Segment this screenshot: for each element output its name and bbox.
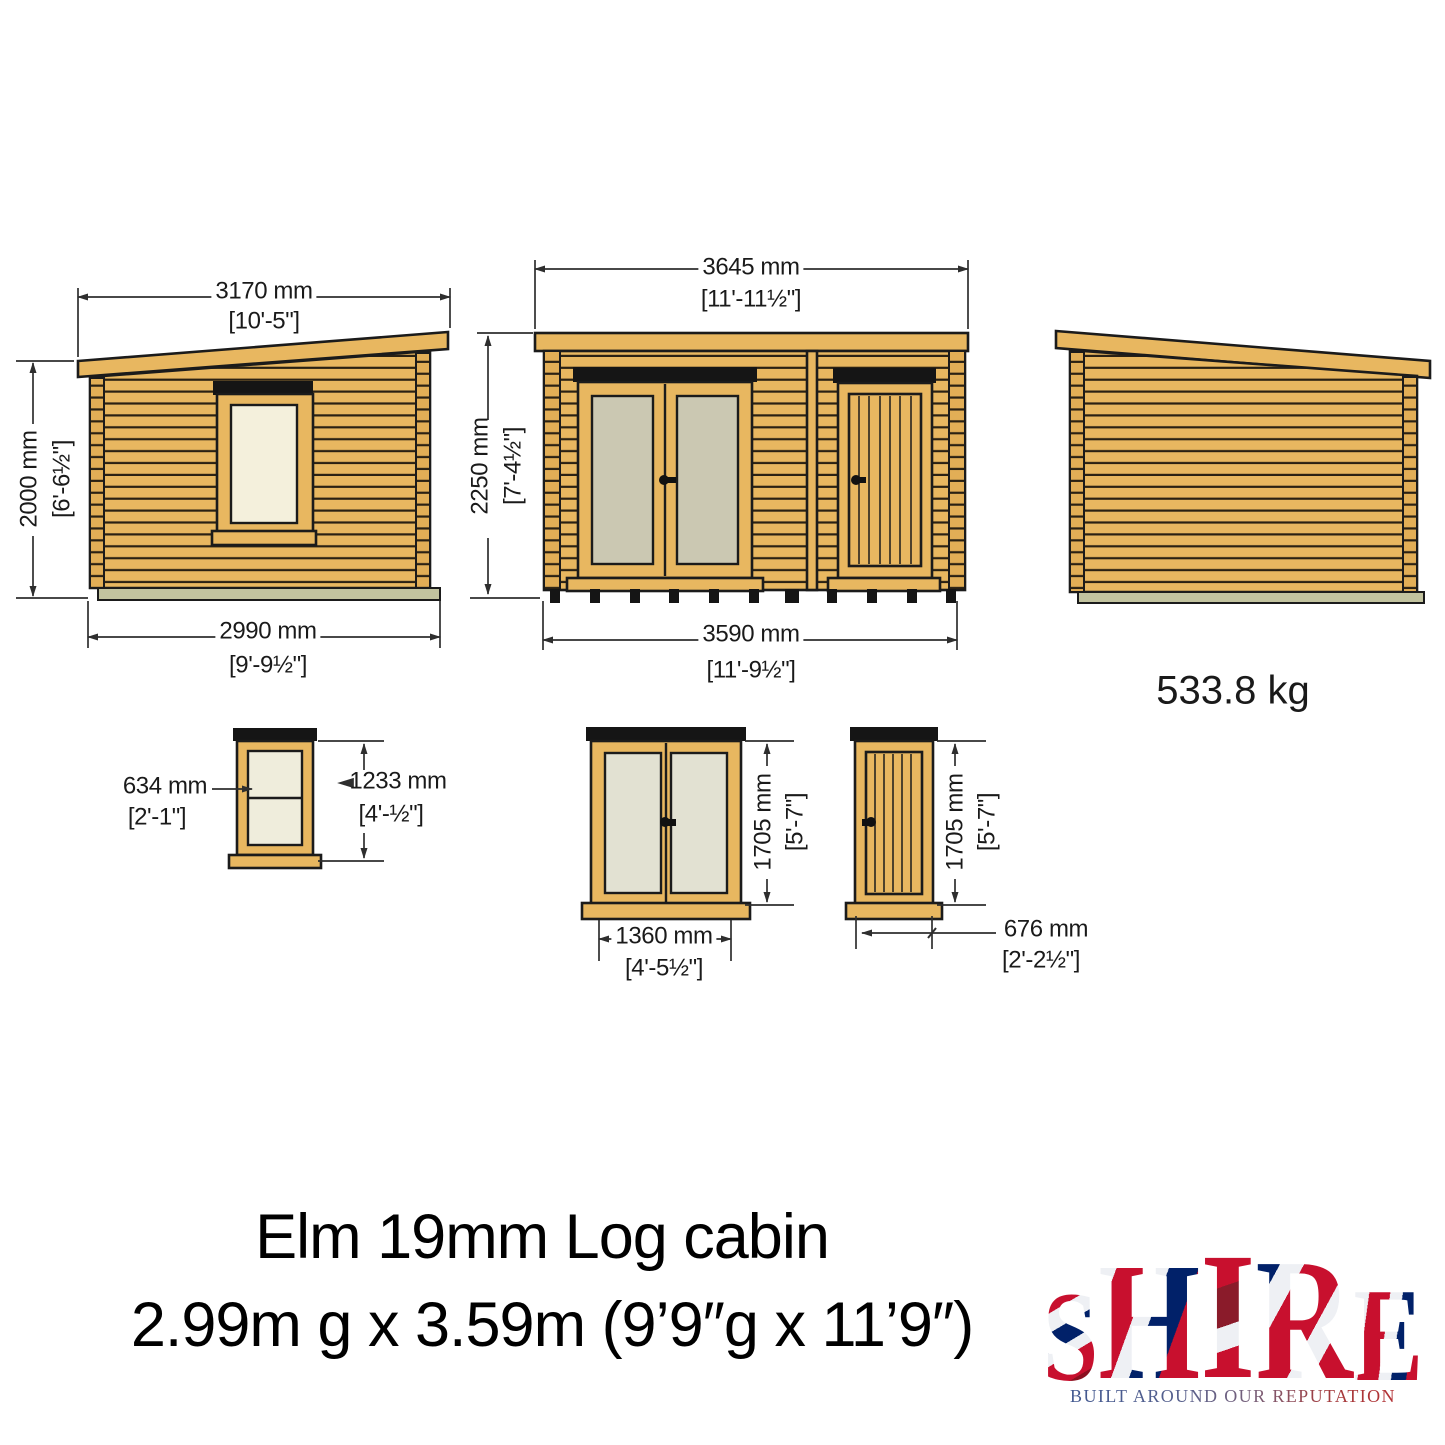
dim-side-bottom-ft: [9'-9½"] bbox=[229, 652, 307, 677]
front-single-door bbox=[828, 368, 940, 591]
dim-sdoor-height-ft: [5'-7"] bbox=[974, 793, 999, 851]
dim-side-top-ft: [10'-5"] bbox=[228, 308, 299, 333]
dim-front-top-mm: 3645 mm bbox=[698, 254, 803, 279]
dim-side-height-mm: 2000 mm bbox=[16, 430, 41, 527]
logo-letter-e: E bbox=[1354, 1283, 1424, 1388]
dim-side-top-mm: 3170 mm bbox=[211, 278, 316, 303]
dim-front-height-mm: 2250 mm bbox=[467, 417, 492, 514]
dim-window-width-ft: [2'-1"] bbox=[128, 804, 186, 829]
shire-logo-letters: S H I R E bbox=[1084, 1240, 1382, 1388]
dim-front-height-ft: [7'-4½"] bbox=[500, 427, 525, 505]
dim-window-width-mm: 634 mm bbox=[123, 773, 207, 798]
product-dimensions: 2.99m g x 3.59m (9’9″g x 11’9″) bbox=[131, 1289, 973, 1361]
dim-sdoor-width-mm: 676 mm bbox=[1000, 916, 1092, 941]
dim-side-bottom-mm: 2990 mm bbox=[215, 618, 320, 643]
side-left-view bbox=[16, 288, 450, 648]
logo-letter-r: R bbox=[1255, 1252, 1353, 1388]
dim-ddoor-width-mm: 1360 mm bbox=[611, 923, 716, 948]
dim-sdoor-height-mm: 1705 mm bbox=[942, 773, 967, 870]
dim-side-height-ft: [6'-6½"] bbox=[49, 440, 74, 518]
dim-ddoor-height-ft: [5'-7"] bbox=[782, 793, 807, 851]
dim-sdoor-width-ft: [2'-2½"] bbox=[1002, 947, 1080, 972]
side-right-view bbox=[1056, 331, 1430, 603]
front-double-door bbox=[567, 367, 763, 591]
dim-front-bottom-mm: 3590 mm bbox=[698, 621, 803, 646]
dim-front-bottom-ft: [11'-9½"] bbox=[706, 657, 795, 682]
dim-window-height-mm: 1233 mm bbox=[349, 768, 446, 793]
logo-letter-s: S bbox=[1043, 1288, 1099, 1388]
window-detail bbox=[212, 728, 384, 868]
front-view bbox=[470, 260, 968, 650]
dim-ddoor-width-ft: [4'-5½"] bbox=[625, 955, 703, 980]
cabin-weight: 533.8 kg bbox=[1156, 669, 1309, 714]
dim-front-top-ft: [11'-11½"] bbox=[701, 286, 801, 311]
shire-logo: S H I R E BUILT AROUND OUR REPUTATION bbox=[1042, 1240, 1424, 1402]
logo-letter-h: H bbox=[1098, 1257, 1200, 1388]
product-title: Elm 19mm Log cabin bbox=[255, 1201, 829, 1273]
logo-letter-i: I bbox=[1200, 1246, 1255, 1388]
dim-window-height-ft: [4'-½"] bbox=[359, 801, 424, 826]
logo-tagline: BUILT AROUND OUR REPUTATION bbox=[1042, 1386, 1424, 1407]
dim-ddoor-height-mm: 1705 mm bbox=[750, 773, 775, 870]
log-cabin-dimension-sheet: 3170 mm [10'-5"] 2000 mm [6'-6½"] 2990 m… bbox=[0, 0, 1445, 1445]
